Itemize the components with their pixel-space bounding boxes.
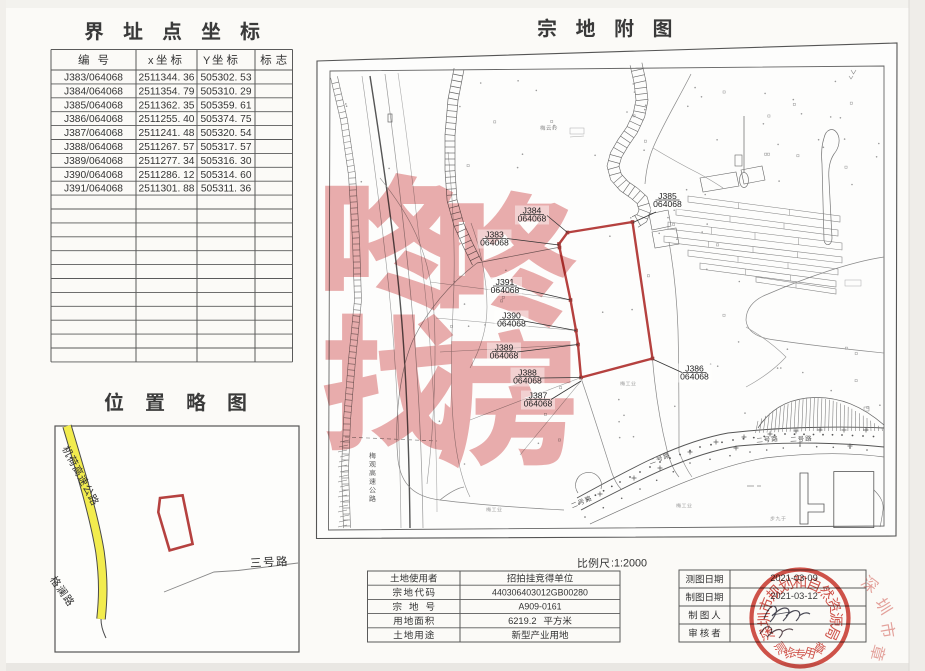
svg-text:505314. 60: 505314. 60 bbox=[201, 170, 252, 181]
svg-text:505316. 30: 505316. 30 bbox=[201, 156, 252, 167]
svg-text:J389/064068: J389/064068 bbox=[64, 156, 123, 167]
svg-text:2511277. 34: 2511277. 34 bbox=[139, 156, 195, 167]
svg-text:064068: 064068 bbox=[497, 319, 526, 329]
svg-text:505311. 36: 505311. 36 bbox=[201, 184, 252, 195]
svg-text:2511267. 57: 2511267. 57 bbox=[139, 142, 195, 153]
svg-text:064068: 064068 bbox=[653, 199, 682, 209]
svg-text:2511301. 88: 2511301. 88 bbox=[139, 184, 195, 195]
svg-text:2511255. 40: 2511255. 40 bbox=[139, 114, 195, 125]
svg-text:505302. 53: 505302. 53 bbox=[201, 73, 252, 84]
svg-text:2511241. 48: 2511241. 48 bbox=[139, 128, 195, 139]
svg-text:Y: Y bbox=[203, 55, 211, 67]
svg-text:505374. 75: 505374. 75 bbox=[201, 114, 252, 125]
svg-text:J386/064068: J386/064068 bbox=[64, 114, 123, 125]
svg-text:440306403012GB00280: 440306403012GB00280 bbox=[492, 588, 588, 598]
svg-text:064068: 064068 bbox=[513, 376, 542, 386]
svg-text:064068: 064068 bbox=[491, 285, 520, 295]
svg-text:064068: 064068 bbox=[518, 214, 547, 224]
svg-text:J383/064068: J383/064068 bbox=[64, 73, 123, 84]
svg-text:J387/064068: J387/064068 bbox=[64, 128, 123, 139]
svg-text:x: x bbox=[148, 55, 154, 67]
svg-text:2511344. 36: 2511344. 36 bbox=[139, 73, 195, 84]
svg-text:505320. 54: 505320. 54 bbox=[201, 128, 252, 139]
svg-text:J388/064068: J388/064068 bbox=[64, 142, 123, 153]
svg-text:J384/064068: J384/064068 bbox=[64, 87, 123, 98]
svg-text:6219.2: 6219.2 bbox=[508, 616, 536, 626]
svg-text:J390/064068: J390/064068 bbox=[64, 170, 123, 181]
svg-text:505359. 61: 505359. 61 bbox=[201, 100, 252, 111]
svg-text:2511286. 12: 2511286. 12 bbox=[139, 170, 195, 181]
svg-text:2511354. 79: 2511354. 79 bbox=[139, 87, 195, 98]
svg-text:505310. 29: 505310. 29 bbox=[201, 87, 252, 98]
svg-text::1:2000: :1:2000 bbox=[611, 558, 647, 570]
svg-text:J391/064068: J391/064068 bbox=[64, 184, 123, 195]
svg-text:064068: 064068 bbox=[490, 351, 519, 361]
svg-text:064068: 064068 bbox=[524, 399, 553, 409]
svg-text:505317. 57: 505317. 57 bbox=[201, 142, 252, 153]
svg-text:A909-0161: A909-0161 bbox=[518, 602, 561, 612]
svg-text:064068: 064068 bbox=[480, 238, 509, 248]
svg-text:2511362. 35: 2511362. 35 bbox=[139, 100, 195, 111]
svg-text:064068: 064068 bbox=[680, 372, 709, 382]
svg-text:J385/064068: J385/064068 bbox=[64, 100, 123, 111]
